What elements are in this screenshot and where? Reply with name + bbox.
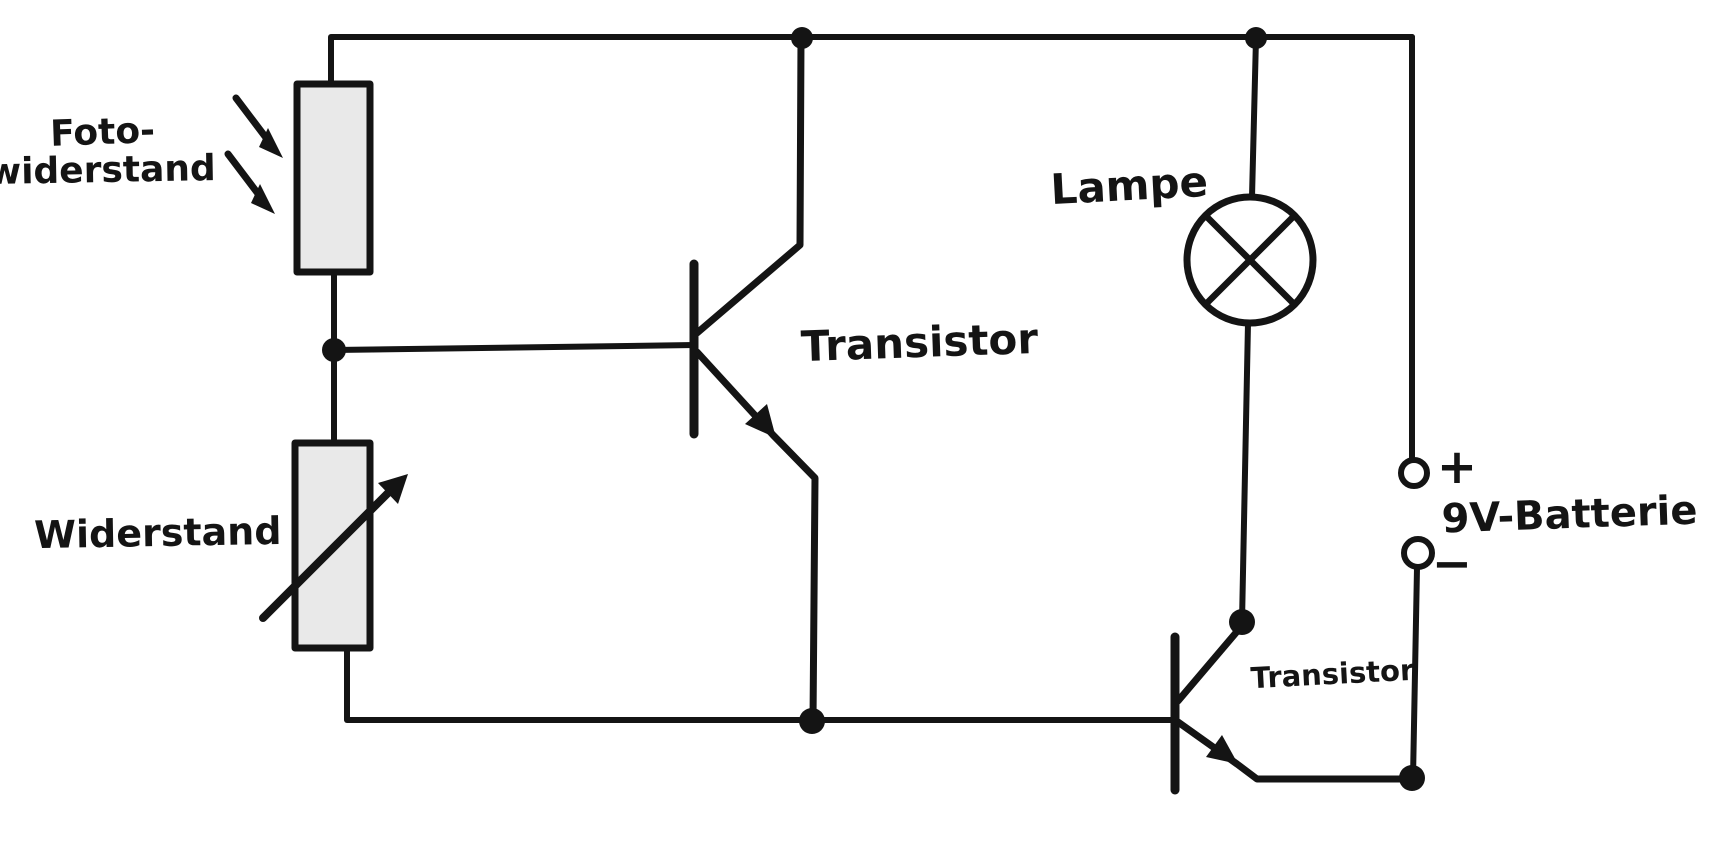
transistor1-collector [697,38,801,333]
photoresistor-label-line1: Foto- [50,110,156,155]
battery-label: 9V-Batterie [1441,488,1698,543]
photoresistor-label-line2: widerstand [0,148,216,193]
wire-lamp-bottom [1242,323,1248,622]
wire-transistor1-base [334,345,695,350]
battery-plus-sign: + [1437,439,1477,495]
junction-dot-lamp-transistor [1229,609,1255,635]
lamp-label: Lampe [1049,157,1209,214]
transistor-right-label: Transistor [1250,653,1416,696]
schematic-svg: Foto- widerstand Widerstand Transistor L… [0,0,1716,863]
resistor-label: Widerstand [34,509,282,557]
junction-dot-top-right [1245,27,1267,49]
wire-lamp-top [1252,38,1256,197]
battery-plus-terminal [1401,460,1427,486]
transistor1-emitter [697,352,815,721]
transistor-left-label: Transistor [800,314,1039,371]
junction-dot-bottom-left [799,708,825,734]
transistor2-collector [1178,628,1240,701]
junction-dot-bottom-right [1399,765,1425,791]
battery-minus-sign: − [1432,536,1472,592]
junction-dot-divider [322,338,346,362]
battery-minus-terminal [1404,539,1432,567]
photoresistor-symbol [297,84,370,272]
junction-dot-top-left [791,27,813,49]
circuit-diagram: Foto- widerstand Widerstand Transistor L… [0,0,1716,863]
